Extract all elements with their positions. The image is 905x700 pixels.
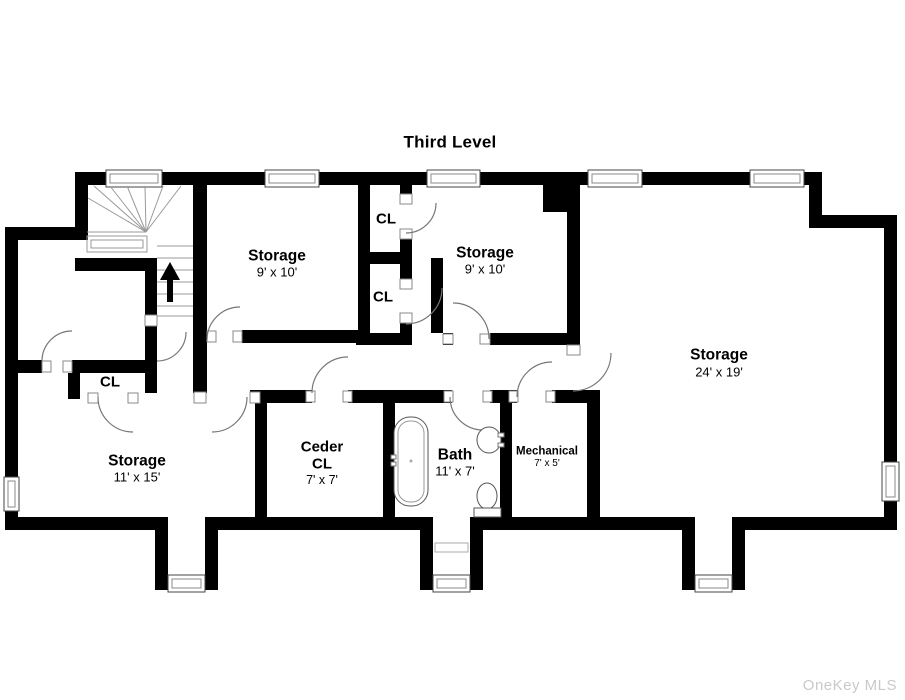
window-top-2 [265, 170, 319, 187]
toilet [474, 483, 501, 517]
door-arc-west-room [42, 331, 72, 361]
door-arc-storage-large [573, 353, 611, 391]
room-label-storage-lower: Storage [108, 453, 166, 469]
dormer-seat [435, 543, 468, 552]
plan-title: Third Level [404, 134, 497, 151]
window-top-1 [106, 170, 162, 187]
door-swings [42, 203, 611, 432]
floor-plan-drawing [0, 0, 905, 700]
window-top-3 [427, 170, 480, 187]
room-dims-storage-large: 24' x 19' [695, 366, 743, 379]
room-label-storage-top-mid: Storage [456, 245, 514, 261]
walls [5, 172, 897, 590]
room-label-storage-top-left: Storage [248, 248, 306, 264]
room-dims-storage-top-left: 9' x 10' [257, 266, 297, 279]
staircase [87, 186, 193, 316]
room-dims-storage-lower: 11' x 15' [114, 471, 161, 484]
chimney [543, 185, 570, 212]
bathtub [391, 417, 428, 506]
room-label-ceder-line2: CL [312, 457, 332, 472]
room-dims-ceder: 7' x 7' [306, 474, 338, 487]
floor-plan: Third Level Storage 9' x 10' Storage 9' … [0, 0, 905, 700]
window-dormer-bath [433, 575, 470, 592]
door-arc-ceder-cl [312, 357, 348, 393]
door-arc-stairs [157, 332, 186, 361]
window-dormer-left [168, 575, 205, 592]
watermark: OneKey MLS [803, 677, 897, 694]
window-right [882, 462, 899, 501]
closet-label-middle: CL [373, 290, 393, 305]
door-arc-storage-lower [212, 397, 247, 432]
room-label-ceder-line1: Ceder [301, 440, 344, 455]
sink [477, 427, 504, 453]
closet-label-left: CL [100, 375, 120, 390]
room-dims-bath: 11' x 7' [435, 465, 474, 478]
room-label-storage-large: Storage [690, 347, 748, 363]
room-dims-storage-top-mid: 9' x 10' [465, 263, 505, 276]
window-left [4, 477, 19, 511]
room-label-mechanical: Mechanical [516, 446, 578, 458]
window-top-5 [750, 170, 804, 187]
window-dormer-right [695, 575, 732, 592]
door-arc-bath [450, 397, 483, 430]
closet-label-upper: CL [376, 212, 396, 227]
room-label-bath: Bath [438, 447, 472, 463]
window-top-4 [588, 170, 642, 187]
room-dims-mechanical: 7' x 5' [534, 459, 560, 469]
bath-fixtures [391, 417, 504, 552]
